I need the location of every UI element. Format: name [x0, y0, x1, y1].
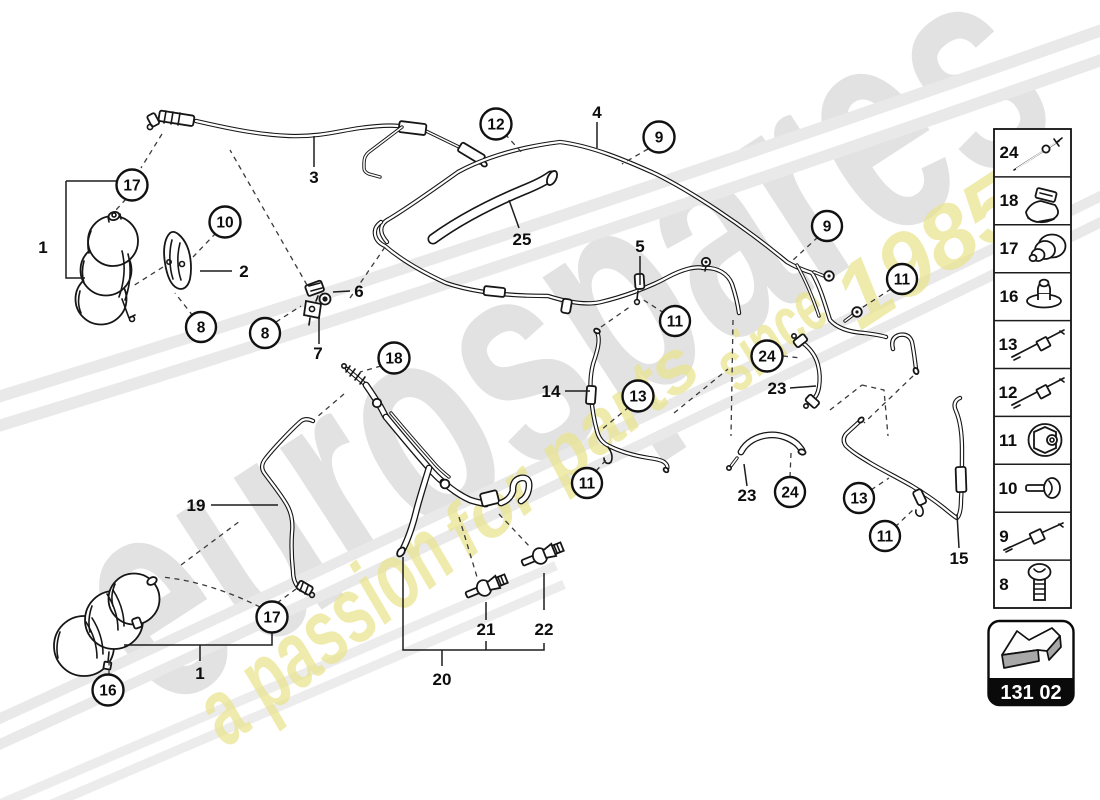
svg-text:23: 23 — [768, 379, 787, 398]
svg-text:5: 5 — [635, 237, 644, 256]
svg-text:19: 19 — [187, 496, 206, 515]
svg-text:22: 22 — [535, 620, 554, 639]
svg-text:2: 2 — [239, 262, 248, 281]
svg-text:11: 11 — [894, 272, 911, 289]
svg-text:24: 24 — [758, 349, 776, 366]
svg-text:23: 23 — [738, 486, 757, 505]
svg-text:4: 4 — [592, 103, 602, 122]
svg-text:24: 24 — [781, 485, 799, 502]
svg-text:12: 12 — [487, 117, 504, 134]
svg-text:8: 8 — [999, 575, 1008, 594]
svg-text:18: 18 — [385, 351, 403, 368]
svg-text:10: 10 — [216, 215, 233, 232]
svg-text:8: 8 — [261, 326, 270, 343]
svg-text:7: 7 — [313, 344, 322, 363]
svg-text:21: 21 — [477, 620, 496, 639]
svg-text:25: 25 — [513, 230, 532, 249]
svg-text:13: 13 — [850, 491, 868, 508]
svg-text:12: 12 — [999, 383, 1018, 402]
svg-text:16: 16 — [1000, 287, 1019, 306]
svg-text:9: 9 — [655, 130, 664, 147]
svg-text:10: 10 — [999, 479, 1018, 498]
svg-text:13: 13 — [629, 389, 647, 406]
svg-text:8: 8 — [197, 320, 206, 337]
svg-text:11: 11 — [999, 431, 1017, 450]
svg-text:1: 1 — [195, 664, 204, 683]
svg-text:3: 3 — [309, 168, 318, 187]
svg-text:9: 9 — [999, 527, 1008, 546]
svg-text:11: 11 — [877, 529, 894, 546]
svg-text:18: 18 — [1000, 191, 1019, 210]
svg-text:131 02: 131 02 — [1000, 682, 1061, 704]
svg-text:17: 17 — [123, 178, 140, 195]
svg-text:11: 11 — [667, 314, 684, 331]
svg-text:17: 17 — [1000, 239, 1019, 258]
svg-text:20: 20 — [433, 670, 452, 689]
svg-text:9: 9 — [823, 219, 832, 236]
svg-text:15: 15 — [950, 549, 969, 568]
svg-text:11: 11 — [579, 476, 596, 493]
svg-text:16: 16 — [99, 683, 117, 700]
svg-text:1: 1 — [38, 238, 47, 257]
svg-text:24: 24 — [1000, 143, 1019, 162]
svg-text:17: 17 — [263, 610, 280, 627]
svg-text:13: 13 — [999, 335, 1018, 354]
svg-text:6: 6 — [354, 282, 363, 301]
svg-text:14: 14 — [542, 382, 561, 401]
